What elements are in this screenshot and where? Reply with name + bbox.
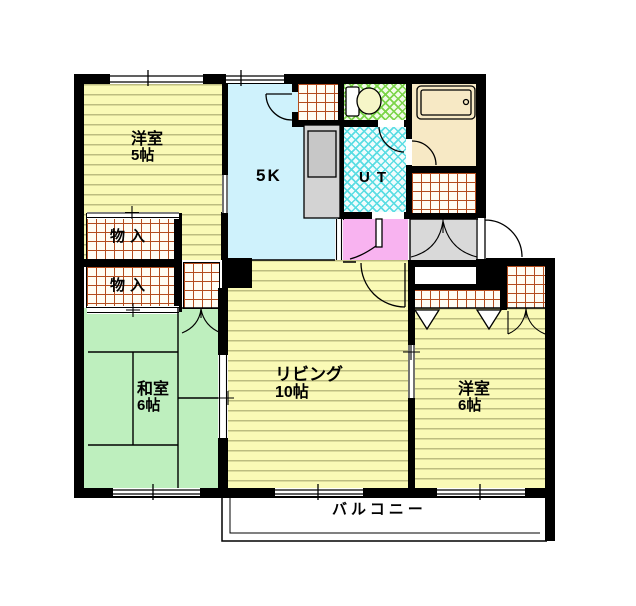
label-japanese: 和室 6帖	[137, 381, 169, 414]
room-name: 和室	[137, 381, 169, 398]
linework-overlay	[0, 0, 636, 606]
room-area: 6帖	[458, 398, 490, 414]
door-swing	[350, 212, 404, 259]
label-balcony: バルコニー	[332, 502, 427, 518]
sliding-door	[218, 355, 234, 438]
room-area: 6帖	[137, 398, 169, 414]
label-utility: UT	[359, 170, 393, 186]
floorplan: 洋室 5帖 5K UT 物入 物入 和室 6帖 リビング 10帖 洋室 6帖 バ…	[0, 0, 636, 606]
sliding-door	[87, 206, 179, 219]
bathtub-icon	[417, 86, 475, 119]
entrance-arch	[411, 219, 477, 257]
room-name: UT	[359, 169, 393, 186]
folding-door	[415, 310, 501, 329]
sliding-door	[87, 303, 179, 317]
room-name: リビング	[275, 366, 343, 384]
room-name: 物入	[110, 228, 150, 245]
label-western6: 洋室 6帖	[458, 381, 490, 414]
window	[437, 484, 525, 500]
room-name: バルコニー	[332, 501, 427, 518]
entrance-door	[476, 218, 522, 259]
label-living: リビング 10帖	[275, 366, 343, 402]
room-area: 10帖	[275, 384, 343, 401]
door-swing	[266, 94, 292, 120]
room-name: 5K	[256, 166, 282, 185]
room-name: 洋室	[131, 131, 163, 148]
kitchen-counter	[304, 125, 340, 218]
label-closet-upper: 物入	[110, 229, 150, 245]
room-name: 物入	[110, 277, 150, 294]
label-kitchen: 5K	[256, 167, 282, 185]
door-swing	[378, 120, 404, 152]
partition-lines	[181, 219, 545, 308]
window	[113, 484, 200, 500]
closet-arch	[182, 308, 221, 333]
window	[110, 70, 203, 86]
sliding-door	[403, 345, 420, 398]
label-closet-lower: 物入	[110, 278, 150, 294]
closet-arch	[508, 308, 545, 334]
room-area: 5帖	[131, 148, 163, 164]
window	[226, 70, 284, 86]
toilet-icon	[346, 87, 381, 116]
opening	[335, 219, 343, 260]
label-western5: 洋室 5帖	[131, 131, 163, 164]
sliding-door	[222, 175, 228, 213]
room-name: 洋室	[458, 381, 490, 398]
door-swing	[361, 263, 405, 307]
door-swing	[406, 139, 436, 165]
window	[275, 484, 363, 500]
